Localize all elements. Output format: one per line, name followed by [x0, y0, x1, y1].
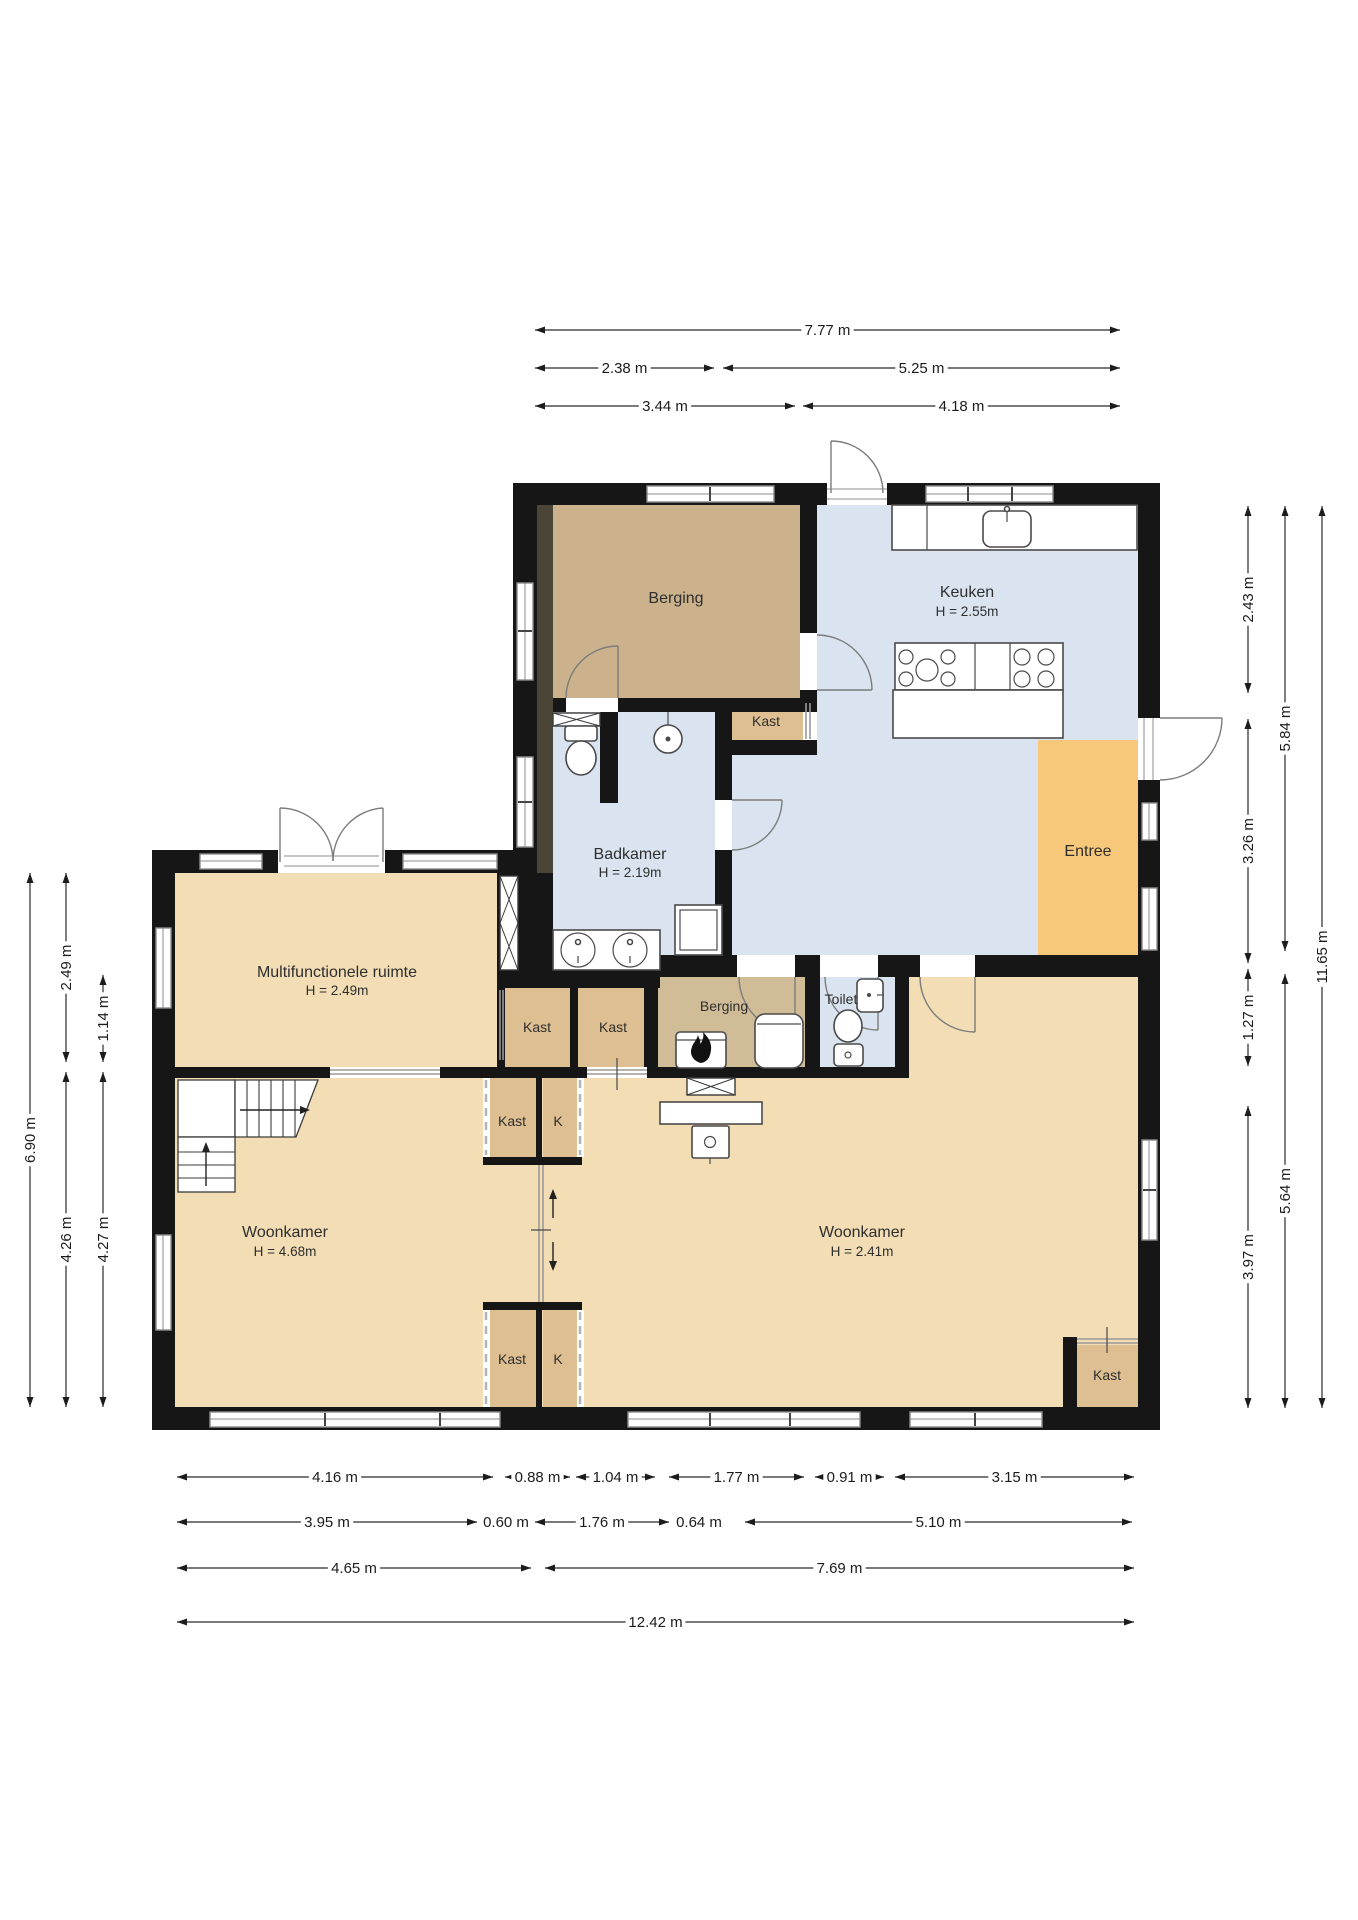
room-label-kast-rechtsonder: Kast	[1093, 1367, 1121, 1383]
room-label-kast-boven: Kast	[752, 713, 780, 729]
dimension-label: 1.76 m	[579, 1514, 625, 1531]
dimension: 1.27 m	[1239, 969, 1257, 1066]
door-arc-front-door	[1160, 718, 1222, 780]
window	[628, 1412, 860, 1427]
dimension: 12.42 m	[177, 1613, 1134, 1631]
toilet-icon	[565, 726, 597, 775]
dimension: 0.88 m	[505, 1468, 570, 1486]
dimension-label: 5.25 m	[899, 360, 945, 377]
dimension-label: 1.77 m	[714, 1469, 760, 1486]
dimension-label: 0.64 m	[676, 1514, 722, 1531]
dimension-label: 5.84 m	[1277, 706, 1294, 752]
dimension: 0.91 m	[815, 1468, 884, 1486]
dimension: 2.43 m	[1239, 506, 1257, 693]
dimension: 0.60 m	[480, 1513, 532, 1531]
dimension: 4.16 m	[177, 1468, 493, 1486]
dimension: 2.49 m	[57, 873, 75, 1062]
shaft-hatch	[500, 876, 518, 970]
window	[1142, 888, 1157, 950]
room-label-badkamer: Badkamer	[594, 846, 668, 863]
room-woonkamer-rechts-boven	[909, 977, 1138, 1078]
dimension: 3.95 m	[177, 1513, 477, 1531]
window	[1142, 1140, 1157, 1240]
dimension: 1.76 m	[535, 1513, 669, 1531]
room-label-woonkamer-rechts: Woonkamer	[819, 1224, 906, 1241]
dimension: 5.10 m	[745, 1513, 1132, 1531]
dimension: 1.04 m	[576, 1468, 655, 1486]
dimension: 4.26 m	[57, 1072, 75, 1407]
dimension: 3.97 m	[1239, 1106, 1257, 1408]
window	[156, 928, 171, 1008]
room-label-multifunctioneel: Multifunctionele ruimte	[257, 964, 417, 981]
wall-inner-layer	[537, 505, 553, 873]
boiler-icon	[676, 1032, 726, 1068]
room-label-berging-groot: Berging	[648, 590, 703, 607]
room-height-keuken: H = 2.55m	[936, 604, 999, 619]
room-label-keuken: Keuken	[940, 584, 994, 601]
dimension-label: 3.26 m	[1240, 818, 1257, 864]
room-label-kast-b: Kast	[498, 1113, 526, 1129]
floor-plan-svg: Berging Keuken H = 2.55m Badkamer H = 2.…	[0, 0, 1358, 1920]
dimension-label: 3.97 m	[1240, 1234, 1257, 1280]
room-label-entree: Entree	[1064, 843, 1111, 860]
window	[647, 486, 774, 502]
room-height-woonkamer-rechts: H = 2.41m	[831, 1244, 894, 1259]
bathroom-vanity	[553, 930, 660, 970]
dimension-label: 0.60 m	[483, 1514, 529, 1531]
room-label-kast-midden-1: Kast	[523, 1019, 551, 1035]
dimension: 5.25 m	[723, 359, 1120, 377]
dimension: 3.15 m	[895, 1468, 1134, 1486]
room-label-k-c: K	[553, 1351, 563, 1367]
hand-basin-icon	[857, 979, 884, 1012]
dimension: 5.64 m	[1276, 974, 1294, 1408]
room-height-multifunctioneel: H = 2.49m	[306, 983, 369, 998]
room-label-kast-c: Kast	[498, 1351, 526, 1367]
dimension: 3.26 m	[1239, 719, 1257, 963]
water-tank-icon	[755, 1014, 803, 1068]
dimension-label: 5.64 m	[1277, 1168, 1294, 1214]
window	[517, 757, 533, 847]
shower-tray-icon	[675, 905, 722, 955]
dimension: 1.14 m	[94, 975, 112, 1062]
room-woonkamers	[175, 1078, 1138, 1407]
room-label-k-b: K	[553, 1113, 563, 1129]
dimension-label: 4.18 m	[939, 398, 985, 415]
dimension-label: 2.43 m	[1240, 577, 1257, 623]
window	[200, 854, 262, 869]
dimension-label: 0.88 m	[515, 1469, 561, 1486]
window	[403, 854, 497, 869]
window	[910, 1412, 1042, 1427]
dimension-label: 3.15 m	[992, 1469, 1038, 1486]
dimension-label: 5.10 m	[916, 1514, 962, 1531]
dimension-label: 1.04 m	[593, 1469, 639, 1486]
room-height-badkamer: H = 2.19m	[599, 865, 662, 880]
room-height-woonkamer-links: H = 4.68m	[254, 1244, 317, 1259]
dimension: 11.65 m	[1313, 506, 1331, 1408]
window	[517, 583, 533, 680]
floor-plan-page: Berging Keuken H = 2.55m Badkamer H = 2.…	[0, 0, 1358, 1920]
dimension: 4.27 m	[94, 1072, 112, 1407]
dimension-label: 6.90 m	[22, 1117, 39, 1163]
dimension-label: 3.44 m	[642, 398, 688, 415]
dimension-label: 4.26 m	[58, 1217, 75, 1263]
chimney-hatch	[687, 1078, 735, 1095]
dimension-label: 3.95 m	[304, 1514, 350, 1531]
dimension-label: 2.38 m	[602, 360, 648, 377]
dimension-label: 2.49 m	[58, 945, 75, 991]
dimension-label: 1.14 m	[95, 996, 112, 1042]
dimension: 5.84 m	[1276, 506, 1294, 951]
dimension-label: 11.65 m	[1314, 930, 1331, 983]
dimension-label: 4.65 m	[331, 1560, 377, 1577]
window	[926, 486, 1053, 502]
dimension: 1.77 m	[669, 1468, 804, 1486]
dimension: 4.18 m	[803, 397, 1120, 415]
window	[1142, 803, 1157, 840]
dimension-label: 0.91 m	[827, 1469, 873, 1486]
dimension-label: 12.42 m	[628, 1614, 682, 1631]
kitchen-island	[893, 643, 1063, 738]
kitchen-sink-icon	[983, 507, 1031, 548]
dimension: 3.44 m	[535, 397, 795, 415]
kitchen-counter	[892, 505, 1137, 550]
dimension-label: 7.69 m	[817, 1560, 863, 1577]
room-hal-strook	[732, 755, 817, 955]
dimension-label: 4.27 m	[95, 1217, 112, 1263]
room-label-toilet: Toilet	[825, 991, 858, 1007]
dimension: 6.90 m	[21, 873, 39, 1407]
window	[156, 1235, 171, 1330]
room-label-berging-klein: Berging	[700, 998, 748, 1014]
shaft-hatch	[553, 713, 600, 726]
dimension: 7.77 m	[535, 321, 1120, 339]
dimension: 7.69 m	[545, 1559, 1134, 1577]
window	[210, 1412, 500, 1427]
dimension-label: 4.16 m	[312, 1469, 358, 1486]
room-label-kast-midden-2: Kast	[599, 1019, 627, 1035]
dimension-label: 7.77 m	[805, 322, 851, 339]
dimension: 0.64 m	[673, 1513, 725, 1531]
dimension: 4.65 m	[177, 1559, 531, 1577]
dimension-label: 1.27 m	[1240, 995, 1257, 1041]
room-label-woonkamer-links: Woonkamer	[242, 1224, 329, 1241]
dimension: 2.38 m	[535, 359, 714, 377]
